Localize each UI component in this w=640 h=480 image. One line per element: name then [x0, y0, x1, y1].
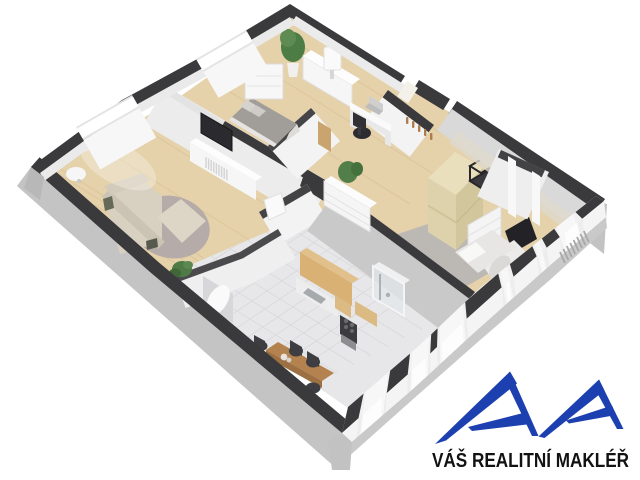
svg-text:VÁŠ REALITNÍ MAKLÉŘ: VÁŠ REALITNÍ MAKLÉŘ — [432, 448, 629, 472]
